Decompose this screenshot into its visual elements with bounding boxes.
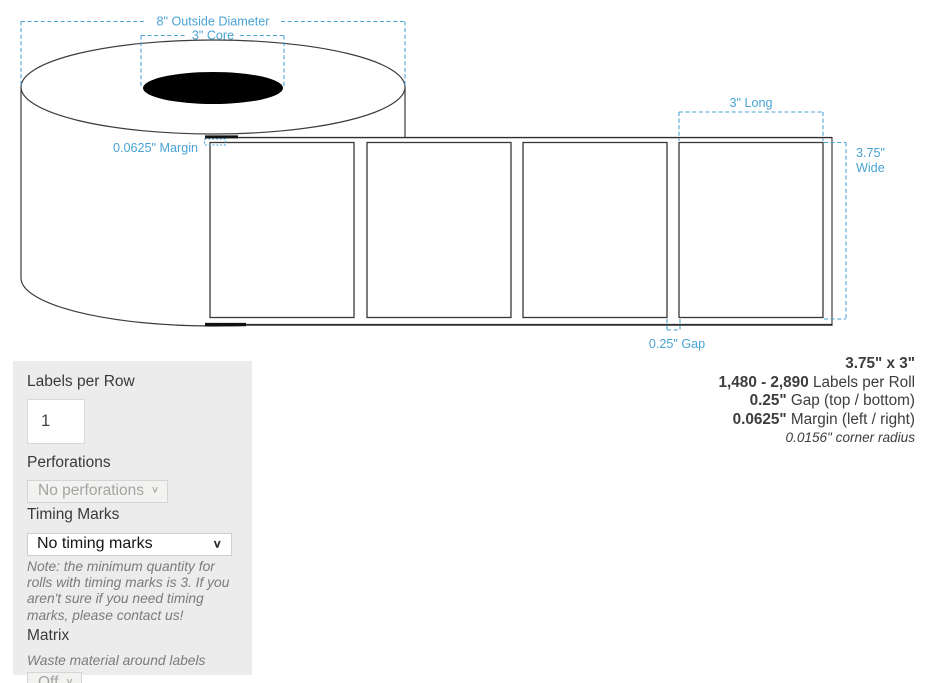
perforations-selected-value: No perforations: [38, 482, 144, 499]
spec-gap: 0.25" Gap (top / bottom): [719, 392, 915, 411]
label-rect-2: [367, 143, 511, 318]
spec-margin-text: Margin (left / right): [787, 411, 915, 428]
perforations-select[interactable]: No perforations ∨: [27, 480, 168, 503]
outside-diameter-annotation: 8" Outside Diameter: [157, 15, 270, 29]
matrix-selected-value: Off: [38, 674, 58, 683]
spec-corner-radius: 0.0156" corner radius: [719, 429, 915, 448]
spec-gap-text: Gap (top / bottom): [787, 392, 915, 409]
margin-annotation: 0.0625" Margin: [113, 141, 198, 155]
spec-gap-value: 0.25": [750, 392, 787, 409]
chevron-down-icon: ∨: [212, 536, 222, 550]
spec-size: 3.75" x 3": [719, 355, 915, 374]
labels-per-row-input[interactable]: [27, 399, 85, 444]
timing-marks-label: Timing Marks: [27, 505, 238, 524]
spec-margin-value: 0.0625": [733, 411, 787, 428]
label-rect-1: [210, 143, 354, 318]
label-configurator-page: 8" Outside Diameter 3" Core 0.0625" Marg…: [0, 0, 928, 683]
perforations-label: Perforations: [27, 453, 238, 472]
matrix-select[interactable]: Off ∨: [27, 672, 82, 683]
label-rect-3: [523, 143, 667, 318]
spec-labels-per-roll-value: 1,480 - 2,890: [719, 374, 809, 391]
wide-annotation-word: Wide: [856, 161, 885, 175]
labels-per-row-label: Labels per Row: [27, 372, 238, 391]
core-annotation: 3" Core: [192, 29, 234, 43]
spec-labels-per-roll: 1,480 - 2,890 Labels per Roll: [719, 374, 915, 393]
timing-marks-select[interactable]: No timing marks ∨: [27, 533, 232, 556]
spec-labels-per-roll-text: Labels per Roll: [809, 374, 915, 391]
options-panel: Labels per Row Perforations No perforati…: [13, 361, 252, 675]
timing-marks-selected-value: No timing marks: [37, 535, 153, 552]
gap-annotation: 0.25" Gap: [649, 337, 705, 351]
matrix-label: Matrix: [27, 626, 238, 645]
roll-core-hole: [143, 72, 283, 104]
long-annotation: 3" Long: [730, 96, 773, 110]
matrix-description: Waste material around labels: [27, 653, 243, 669]
chevron-down-icon: ∨: [151, 483, 159, 497]
spec-margin: 0.0625" Margin (left / right): [719, 411, 915, 430]
timing-marks-note: Note: the minimum quantity for rolls wit…: [27, 559, 243, 624]
label-roll-diagram: 8" Outside Diameter 3" Core 0.0625" Marg…: [0, 0, 928, 360]
wide-annotation-value: 3.75": [856, 146, 885, 160]
chevron-down-icon: ∨: [65, 675, 73, 683]
spec-summary: 3.75" x 3" 1,480 - 2,890 Labels per Roll…: [719, 355, 915, 448]
label-rect-4: [679, 143, 823, 318]
